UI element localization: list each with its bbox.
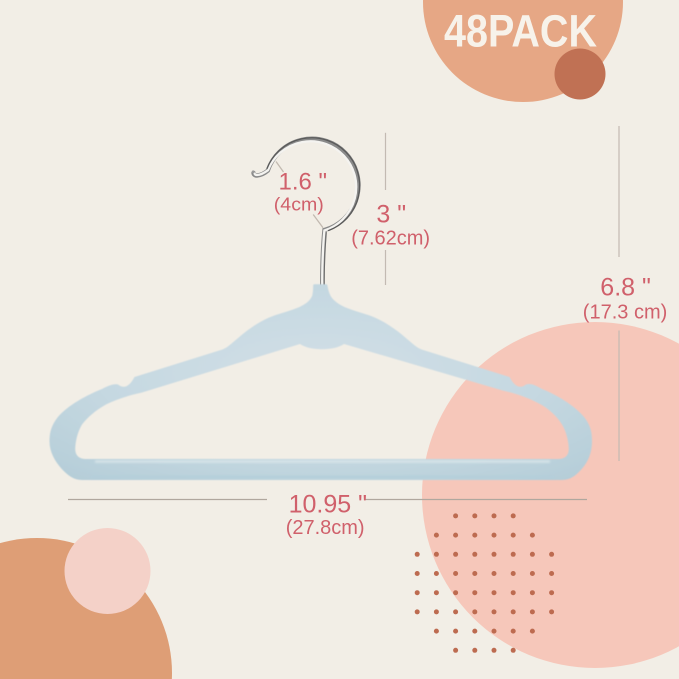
svg-text:48PACK: 48PACK [444, 6, 597, 57]
svg-text:(27.8cm): (27.8cm) [286, 517, 365, 539]
svg-text:3 ": 3 " [376, 200, 406, 228]
svg-text:1.6 ": 1.6 " [279, 168, 328, 195]
svg-text:10.95 ": 10.95 " [289, 490, 367, 518]
svg-text:(17.3 cm): (17.3 cm) [583, 302, 667, 324]
svg-text:(4cm): (4cm) [274, 194, 324, 214]
svg-text:6.8 ": 6.8 " [600, 273, 651, 301]
svg-text:(7.62cm): (7.62cm) [351, 227, 430, 249]
